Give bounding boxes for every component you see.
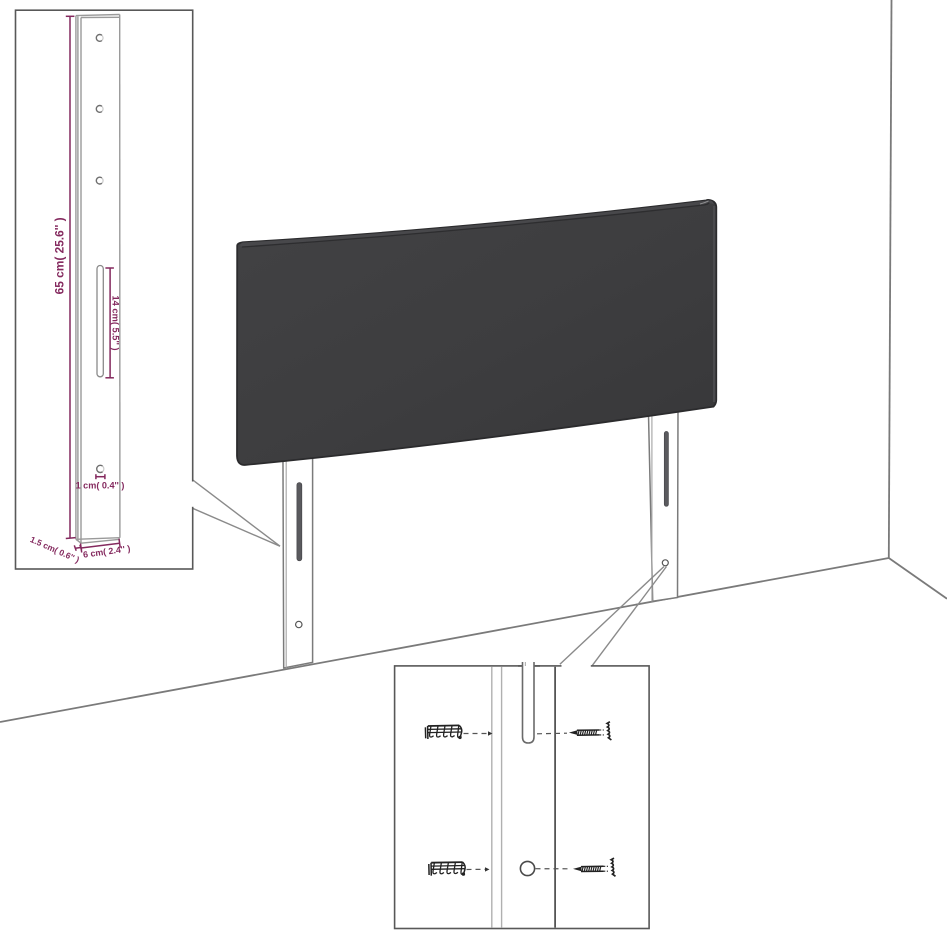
svg-text:65 cm( 25.6'' ): 65 cm( 25.6'' ) bbox=[53, 217, 67, 294]
svg-text:1 cm( 0.4'' ): 1 cm( 0.4'' ) bbox=[76, 481, 125, 491]
svg-text:14 cm( 5.5'' ): 14 cm( 5.5'' ) bbox=[111, 296, 121, 351]
